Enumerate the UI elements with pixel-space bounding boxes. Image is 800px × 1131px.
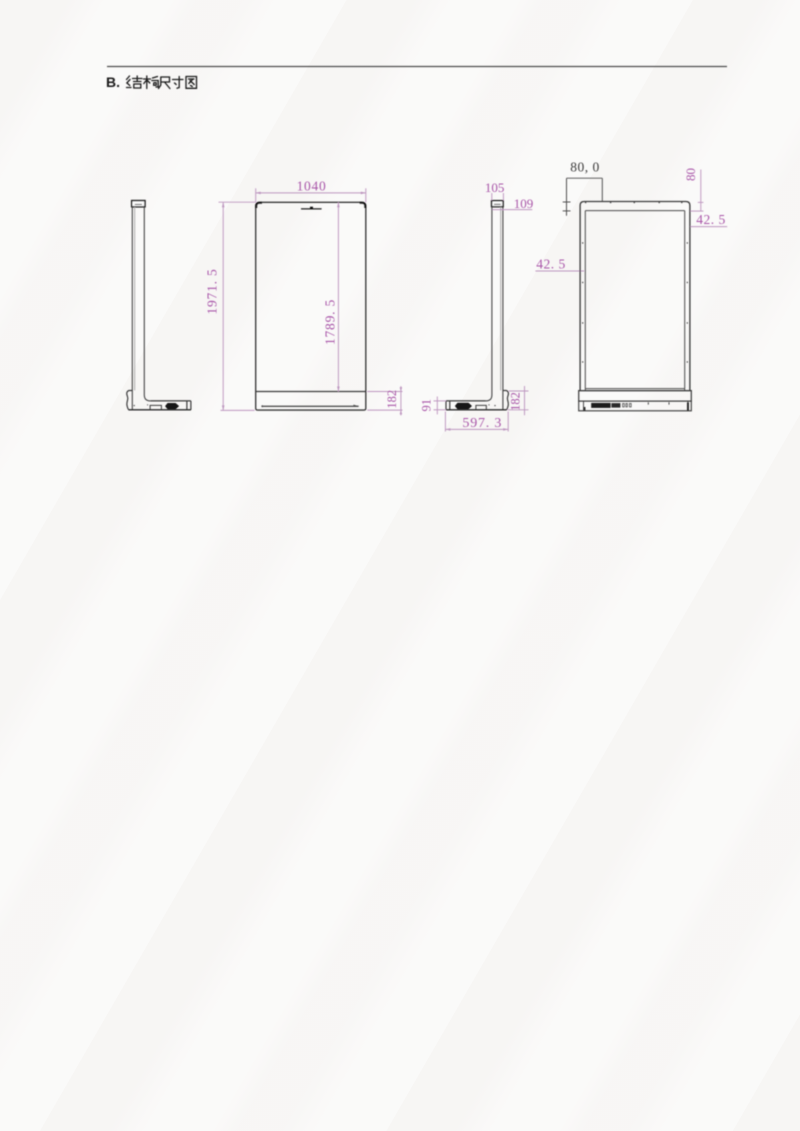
svg-text:B.: B.: [106, 74, 120, 90]
svg-text:42. 5: 42. 5: [696, 212, 726, 227]
svg-text:1971. 5: 1971. 5: [205, 268, 220, 314]
svg-text:182: 182: [509, 392, 523, 411]
svg-text:80, 0: 80, 0: [570, 160, 600, 175]
svg-text:80: 80: [683, 168, 698, 181]
svg-text:182: 182: [385, 390, 399, 409]
svg-text:105: 105: [485, 180, 505, 195]
svg-text:91: 91: [420, 399, 434, 412]
svg-text:1040: 1040: [297, 178, 327, 193]
svg-text:1789. 5: 1789. 5: [322, 299, 337, 345]
svg-text:42. 5: 42. 5: [536, 256, 566, 271]
svg-text:597. 3: 597. 3: [462, 416, 502, 431]
svg-text:109: 109: [514, 196, 534, 211]
